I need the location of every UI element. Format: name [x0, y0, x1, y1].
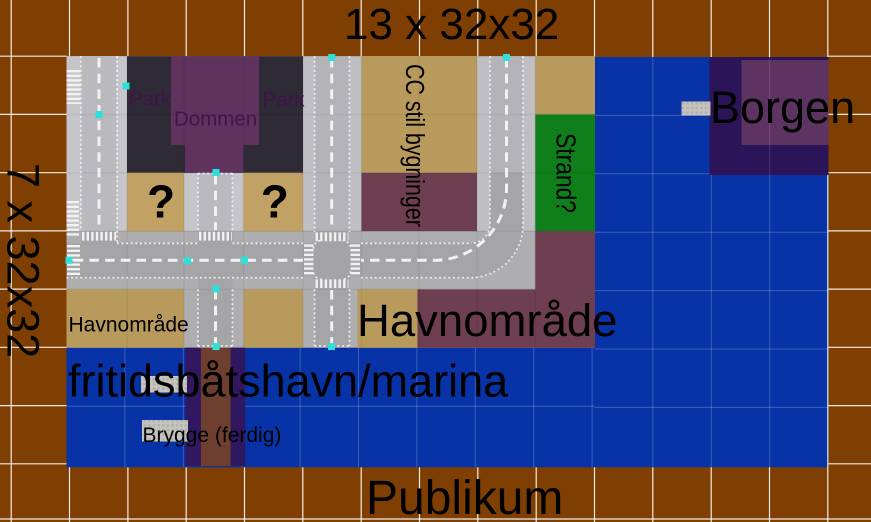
svg-text:13 x 32x32: 13 x 32x32 [344, 0, 559, 49]
svg-text:Havnområde: Havnområde [357, 295, 618, 346]
svg-text:7 x 32x32: 7 x 32x32 [0, 163, 49, 358]
svg-text:Park: Park [129, 87, 172, 110]
svg-text:Publikum: Publikum [366, 472, 563, 522]
svg-text:Havnområde: Havnområde [69, 314, 189, 337]
svg-text:CC stil bygninger: CC stil bygninger [399, 64, 428, 227]
svg-text:?: ? [261, 176, 289, 228]
svg-text:Dommen: Dommen [174, 108, 257, 131]
svg-text:Strand?: Strand? [550, 133, 581, 213]
svg-text:Borgen: Borgen [710, 82, 855, 133]
svg-text:Park: Park [262, 88, 305, 111]
svg-text:?: ? [147, 176, 175, 228]
svg-text:fritidsbåtshavn/marina: fritidsbåtshavn/marina [68, 356, 509, 407]
svg-text:Brygge (ferdig): Brygge (ferdig) [143, 424, 282, 447]
